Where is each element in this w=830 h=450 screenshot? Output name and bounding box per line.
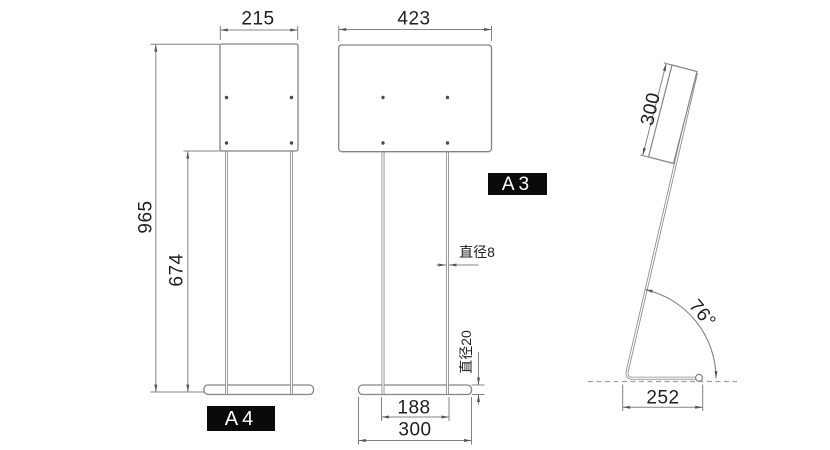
a4-sign-panel bbox=[220, 44, 298, 151]
a4-total-height-label: 965 bbox=[137, 200, 156, 233]
a3-front-view bbox=[339, 26, 492, 445]
a3-pole-diameter-leader bbox=[437, 264, 479, 267]
a3-base-diameter-label: 直径20 bbox=[459, 330, 473, 374]
a3-support-legs bbox=[383, 152, 448, 394]
a4-width-label: 215 bbox=[241, 10, 274, 29]
a4-pole-height-label: 674 bbox=[168, 253, 187, 286]
a3-pole-diameter-label: 直径8 bbox=[459, 245, 495, 259]
a3-sign-panel bbox=[339, 45, 492, 152]
a4-support-legs bbox=[227, 151, 292, 394]
technical-drawing: 215 965 674 A4 423 直径8 直径20 188 300 A3 3… bbox=[0, 0, 830, 450]
a3-base-width-label: 300 bbox=[398, 421, 431, 440]
caster-wheel bbox=[696, 374, 703, 381]
a3-base-plate bbox=[359, 385, 472, 395]
a3-size-badge: A3 bbox=[488, 173, 547, 195]
a3-width-label: 423 bbox=[397, 10, 430, 29]
a4-size-badge: A4 bbox=[207, 406, 275, 431]
a4-total-height-dimension bbox=[151, 44, 221, 392]
a4-front-view bbox=[151, 26, 314, 395]
side-view bbox=[588, 63, 737, 411]
a4-pole-height-dimension bbox=[184, 151, 222, 392]
a4-base-plate bbox=[204, 385, 314, 395]
a3-leg-span-label: 188 bbox=[397, 399, 430, 418]
side-base-depth-label: 252 bbox=[646, 389, 679, 408]
drawing-linework bbox=[0, 0, 830, 450]
